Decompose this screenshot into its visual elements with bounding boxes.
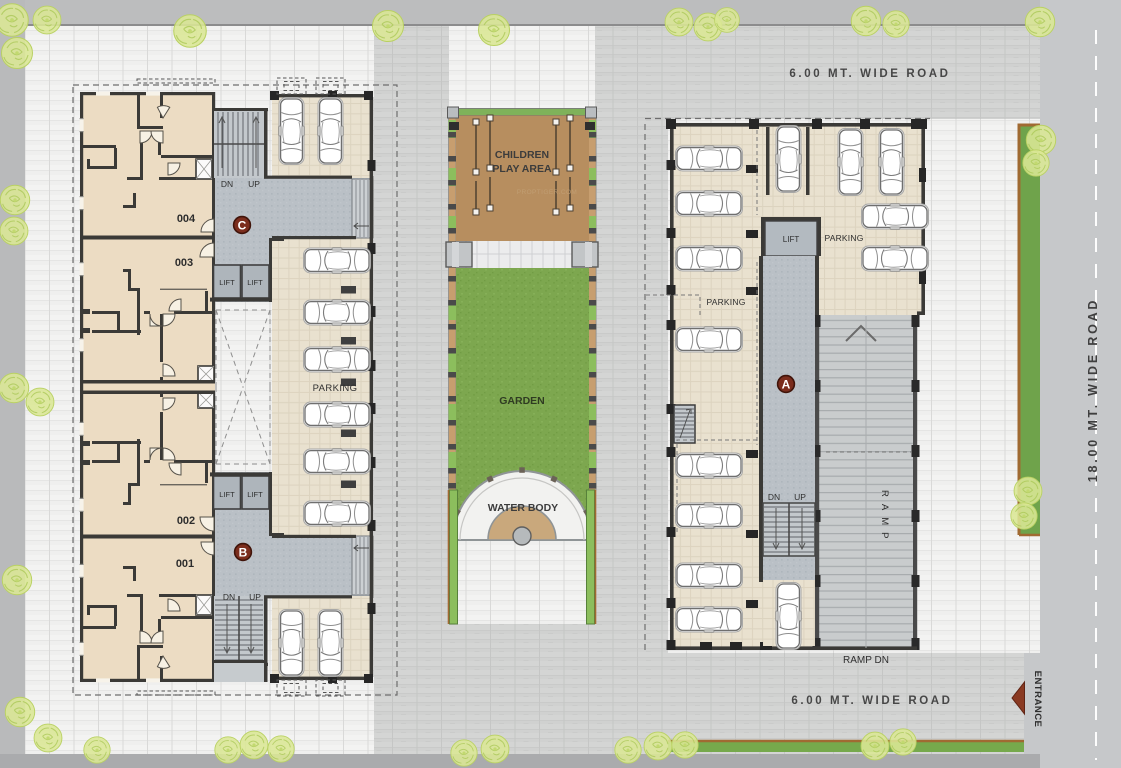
svg-text:UP: UP	[249, 592, 261, 602]
svg-text:18.00 MT. WIDE ROAD: 18.00 MT. WIDE ROAD	[1086, 298, 1100, 482]
svg-text:LIFT: LIFT	[247, 278, 263, 287]
svg-text:DN: DN	[768, 492, 780, 502]
svg-text:6.00 MT. WIDE ROAD: 6.00 MT. WIDE ROAD	[791, 695, 952, 707]
svg-text:6.00 MT. WIDE ROAD: 6.00 MT. WIDE ROAD	[789, 68, 950, 80]
svg-text:UP: UP	[248, 179, 260, 189]
svg-text:DN: DN	[223, 592, 235, 602]
svg-text:B: B	[239, 546, 248, 560]
svg-text:GARDEN: GARDEN	[499, 395, 545, 407]
svg-text:PARKING: PARKING	[824, 233, 863, 243]
svg-text:RAMP: RAMP	[879, 490, 890, 545]
svg-text:PLAY AREA: PLAY AREA	[492, 163, 552, 175]
svg-text:A: A	[782, 378, 791, 392]
svg-text:C: C	[238, 219, 247, 233]
svg-text:UP: UP	[794, 492, 806, 502]
svg-text:CHILDREN: CHILDREN	[495, 149, 549, 161]
svg-text:RAMP DN: RAMP DN	[843, 655, 889, 666]
svg-text:PARKING: PARKING	[706, 297, 745, 307]
svg-text:DN: DN	[221, 179, 233, 189]
svg-text:002: 002	[177, 515, 195, 527]
svg-text:001: 001	[176, 558, 194, 570]
svg-text:LIFT: LIFT	[783, 235, 800, 244]
svg-text:004: 004	[177, 213, 196, 225]
svg-text:LIFT: LIFT	[219, 278, 235, 287]
svg-text:ENTRANCE: ENTRANCE	[1032, 671, 1043, 728]
svg-text:LIFT: LIFT	[219, 490, 235, 499]
svg-text:LIFT: LIFT	[247, 490, 263, 499]
svg-text:PROPTIGER.COM: PROPTIGER.COM	[517, 189, 577, 196]
svg-text:WATER BODY: WATER BODY	[488, 502, 558, 514]
svg-text:003: 003	[175, 257, 193, 269]
svg-text:PARKING: PARKING	[313, 383, 358, 394]
